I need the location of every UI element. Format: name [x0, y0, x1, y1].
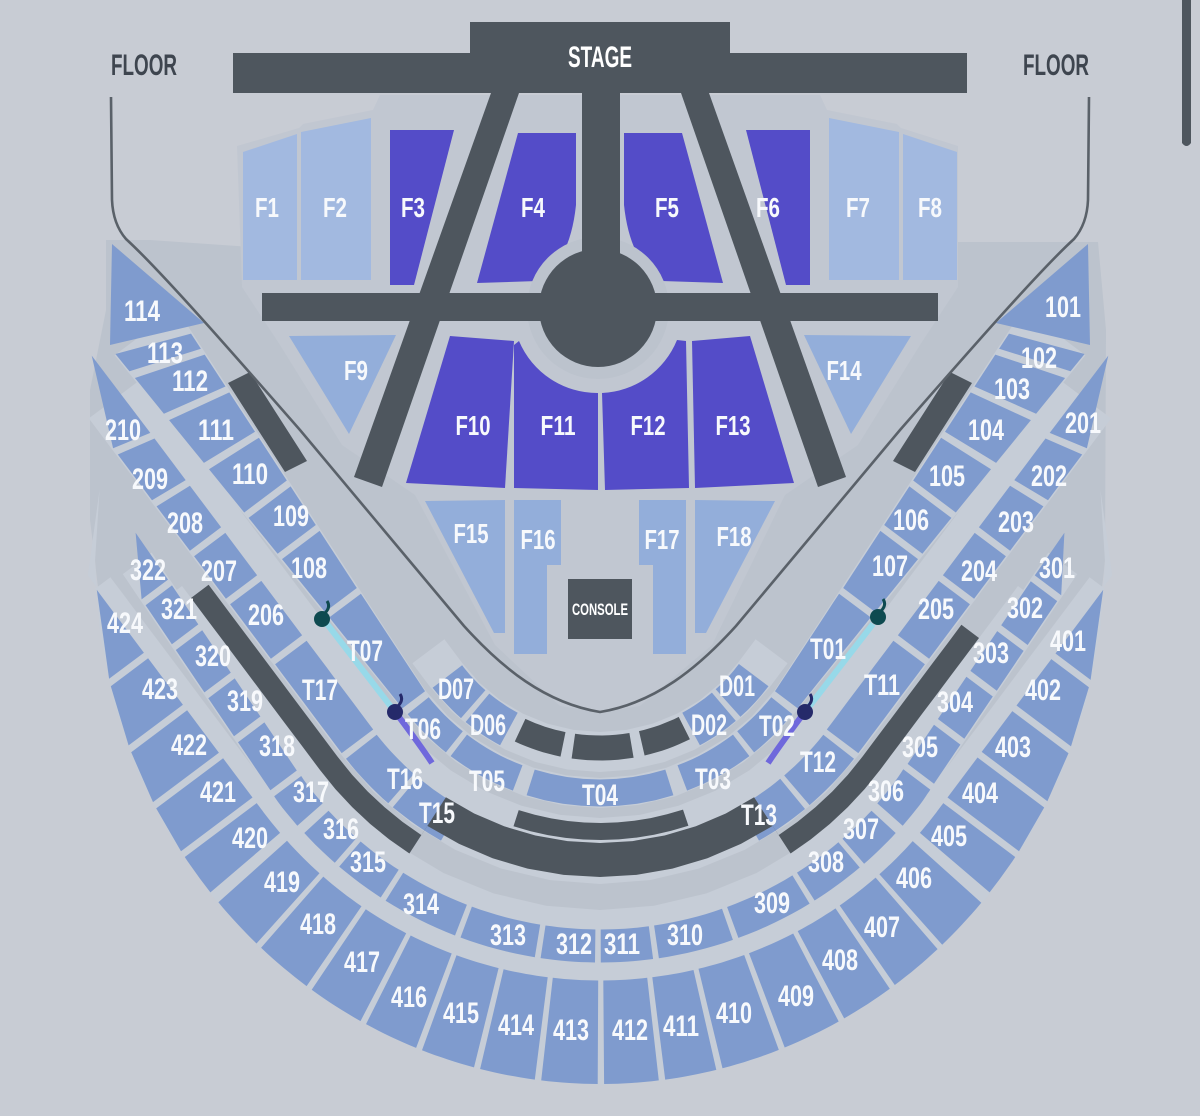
- svg-text:319: 319: [227, 685, 263, 718]
- svg-text:F17: F17: [645, 524, 680, 555]
- svg-text:FLOOR: FLOOR: [111, 49, 177, 82]
- svg-text:409: 409: [778, 980, 814, 1013]
- svg-text:424: 424: [107, 607, 143, 640]
- svg-text:D06: D06: [470, 709, 506, 742]
- svg-text:107: 107: [872, 550, 908, 583]
- svg-text:202: 202: [1031, 460, 1067, 493]
- svg-text:F3: F3: [401, 192, 425, 223]
- svg-text:312: 312: [556, 928, 592, 961]
- svg-text:412: 412: [612, 1014, 648, 1047]
- svg-text:423: 423: [142, 673, 178, 706]
- svg-text:F10: F10: [456, 410, 491, 441]
- svg-text:T11: T11: [864, 669, 900, 702]
- svg-text:209: 209: [132, 463, 168, 496]
- svg-text:307: 307: [843, 813, 879, 846]
- svg-text:CONSOLE: CONSOLE: [572, 600, 628, 619]
- svg-text:401: 401: [1050, 625, 1086, 658]
- svg-text:D07: D07: [438, 673, 474, 706]
- svg-text:302: 302: [1007, 592, 1043, 625]
- svg-text:418: 418: [300, 908, 336, 941]
- svg-text:T16: T16: [387, 763, 423, 796]
- svg-text:203: 203: [998, 506, 1034, 539]
- svg-text:405: 405: [931, 820, 967, 853]
- svg-text:T04: T04: [582, 779, 618, 812]
- svg-text:114: 114: [124, 295, 160, 328]
- svg-text:F1: F1: [255, 192, 279, 223]
- svg-text:F4: F4: [521, 192, 545, 223]
- svg-text:420: 420: [232, 822, 268, 855]
- svg-text:F14: F14: [827, 355, 862, 386]
- svg-text:T05: T05: [469, 765, 505, 798]
- svg-text:313: 313: [490, 919, 526, 952]
- svg-text:T03: T03: [695, 763, 731, 796]
- svg-text:306: 306: [868, 775, 904, 808]
- svg-text:308: 308: [808, 846, 844, 879]
- svg-text:410: 410: [716, 997, 752, 1030]
- svg-text:416: 416: [391, 981, 427, 1014]
- svg-text:320: 320: [195, 640, 231, 673]
- svg-text:T02: T02: [759, 710, 795, 743]
- svg-text:208: 208: [167, 507, 203, 540]
- svg-text:T17: T17: [302, 674, 338, 707]
- svg-text:314: 314: [403, 888, 439, 921]
- svg-text:415: 415: [443, 997, 479, 1030]
- svg-text:403: 403: [995, 731, 1031, 764]
- svg-text:F7: F7: [846, 192, 870, 223]
- svg-text:406: 406: [896, 862, 932, 895]
- svg-text:318: 318: [259, 730, 295, 763]
- svg-text:D01: D01: [719, 670, 755, 703]
- svg-text:FLOOR: FLOOR: [1023, 49, 1089, 82]
- svg-text:F5: F5: [655, 192, 679, 223]
- svg-text:F13: F13: [716, 410, 751, 441]
- svg-text:F8: F8: [918, 192, 942, 223]
- svg-text:205: 205: [918, 593, 954, 626]
- svg-text:108: 108: [291, 552, 327, 585]
- svg-text:T01: T01: [810, 633, 846, 666]
- svg-text:206: 206: [248, 599, 284, 632]
- svg-text:201: 201: [1065, 407, 1101, 440]
- svg-text:414: 414: [498, 1009, 534, 1042]
- svg-text:F12: F12: [631, 410, 666, 441]
- svg-text:F9: F9: [344, 355, 368, 386]
- svg-text:303: 303: [973, 637, 1009, 670]
- svg-text:413: 413: [553, 1014, 589, 1047]
- svg-text:T06: T06: [405, 713, 441, 746]
- svg-text:204: 204: [961, 555, 997, 588]
- svg-text:404: 404: [962, 777, 998, 810]
- svg-text:411: 411: [663, 1010, 699, 1043]
- svg-text:316: 316: [323, 813, 359, 846]
- svg-text:402: 402: [1025, 674, 1061, 707]
- svg-text:417: 417: [344, 946, 380, 979]
- svg-text:408: 408: [822, 944, 858, 977]
- svg-text:105: 105: [929, 460, 965, 493]
- svg-text:422: 422: [171, 729, 207, 762]
- svg-text:T07: T07: [347, 635, 383, 668]
- svg-text:106: 106: [893, 504, 929, 537]
- svg-text:F11: F11: [541, 410, 576, 441]
- svg-text:T15: T15: [419, 797, 455, 830]
- svg-text:311: 311: [604, 928, 640, 961]
- svg-text:309: 309: [754, 887, 790, 920]
- svg-text:F16: F16: [521, 524, 556, 555]
- svg-text:F6: F6: [756, 192, 780, 223]
- svg-text:304: 304: [937, 686, 973, 719]
- svg-text:104: 104: [968, 414, 1004, 447]
- svg-text:315: 315: [350, 846, 386, 879]
- svg-text:310: 310: [667, 919, 703, 952]
- svg-text:T12: T12: [800, 746, 836, 779]
- svg-text:103: 103: [994, 373, 1030, 406]
- svg-text:321: 321: [161, 593, 197, 626]
- svg-text:407: 407: [864, 911, 900, 944]
- svg-text:301: 301: [1039, 552, 1075, 585]
- svg-text:210: 210: [105, 414, 141, 447]
- svg-text:F15: F15: [454, 518, 489, 549]
- svg-text:317: 317: [293, 776, 329, 809]
- svg-text:D02: D02: [691, 709, 727, 742]
- svg-text:322: 322: [130, 554, 166, 587]
- svg-text:STAGE: STAGE: [568, 41, 632, 74]
- svg-text:102: 102: [1021, 342, 1057, 375]
- svg-text:T13: T13: [741, 799, 777, 832]
- svg-text:113: 113: [147, 337, 183, 370]
- svg-text:419: 419: [264, 866, 300, 899]
- svg-text:F18: F18: [717, 521, 752, 552]
- svg-text:110: 110: [232, 458, 268, 491]
- svg-text:421: 421: [200, 776, 236, 809]
- svg-text:F2: F2: [323, 192, 347, 223]
- svg-text:207: 207: [201, 555, 237, 588]
- svg-text:305: 305: [902, 731, 938, 764]
- svg-text:111: 111: [198, 414, 234, 447]
- svg-text:109: 109: [273, 500, 309, 533]
- svg-text:101: 101: [1045, 291, 1081, 324]
